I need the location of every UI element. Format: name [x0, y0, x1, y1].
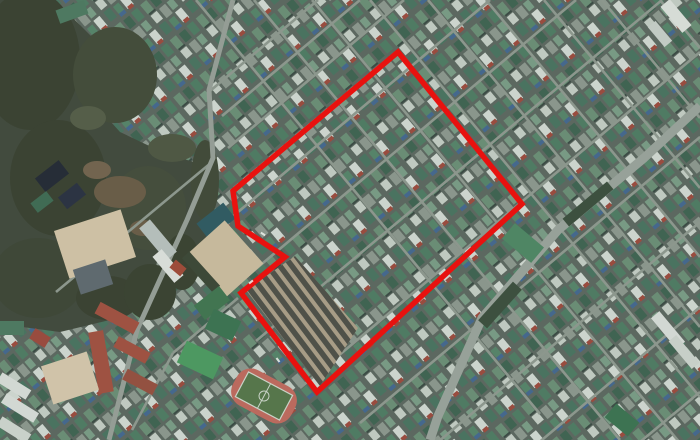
atmospheric-haze [0, 0, 700, 440]
satellite-image [0, 0, 700, 440]
aerial-map-screenshot [0, 0, 700, 440]
